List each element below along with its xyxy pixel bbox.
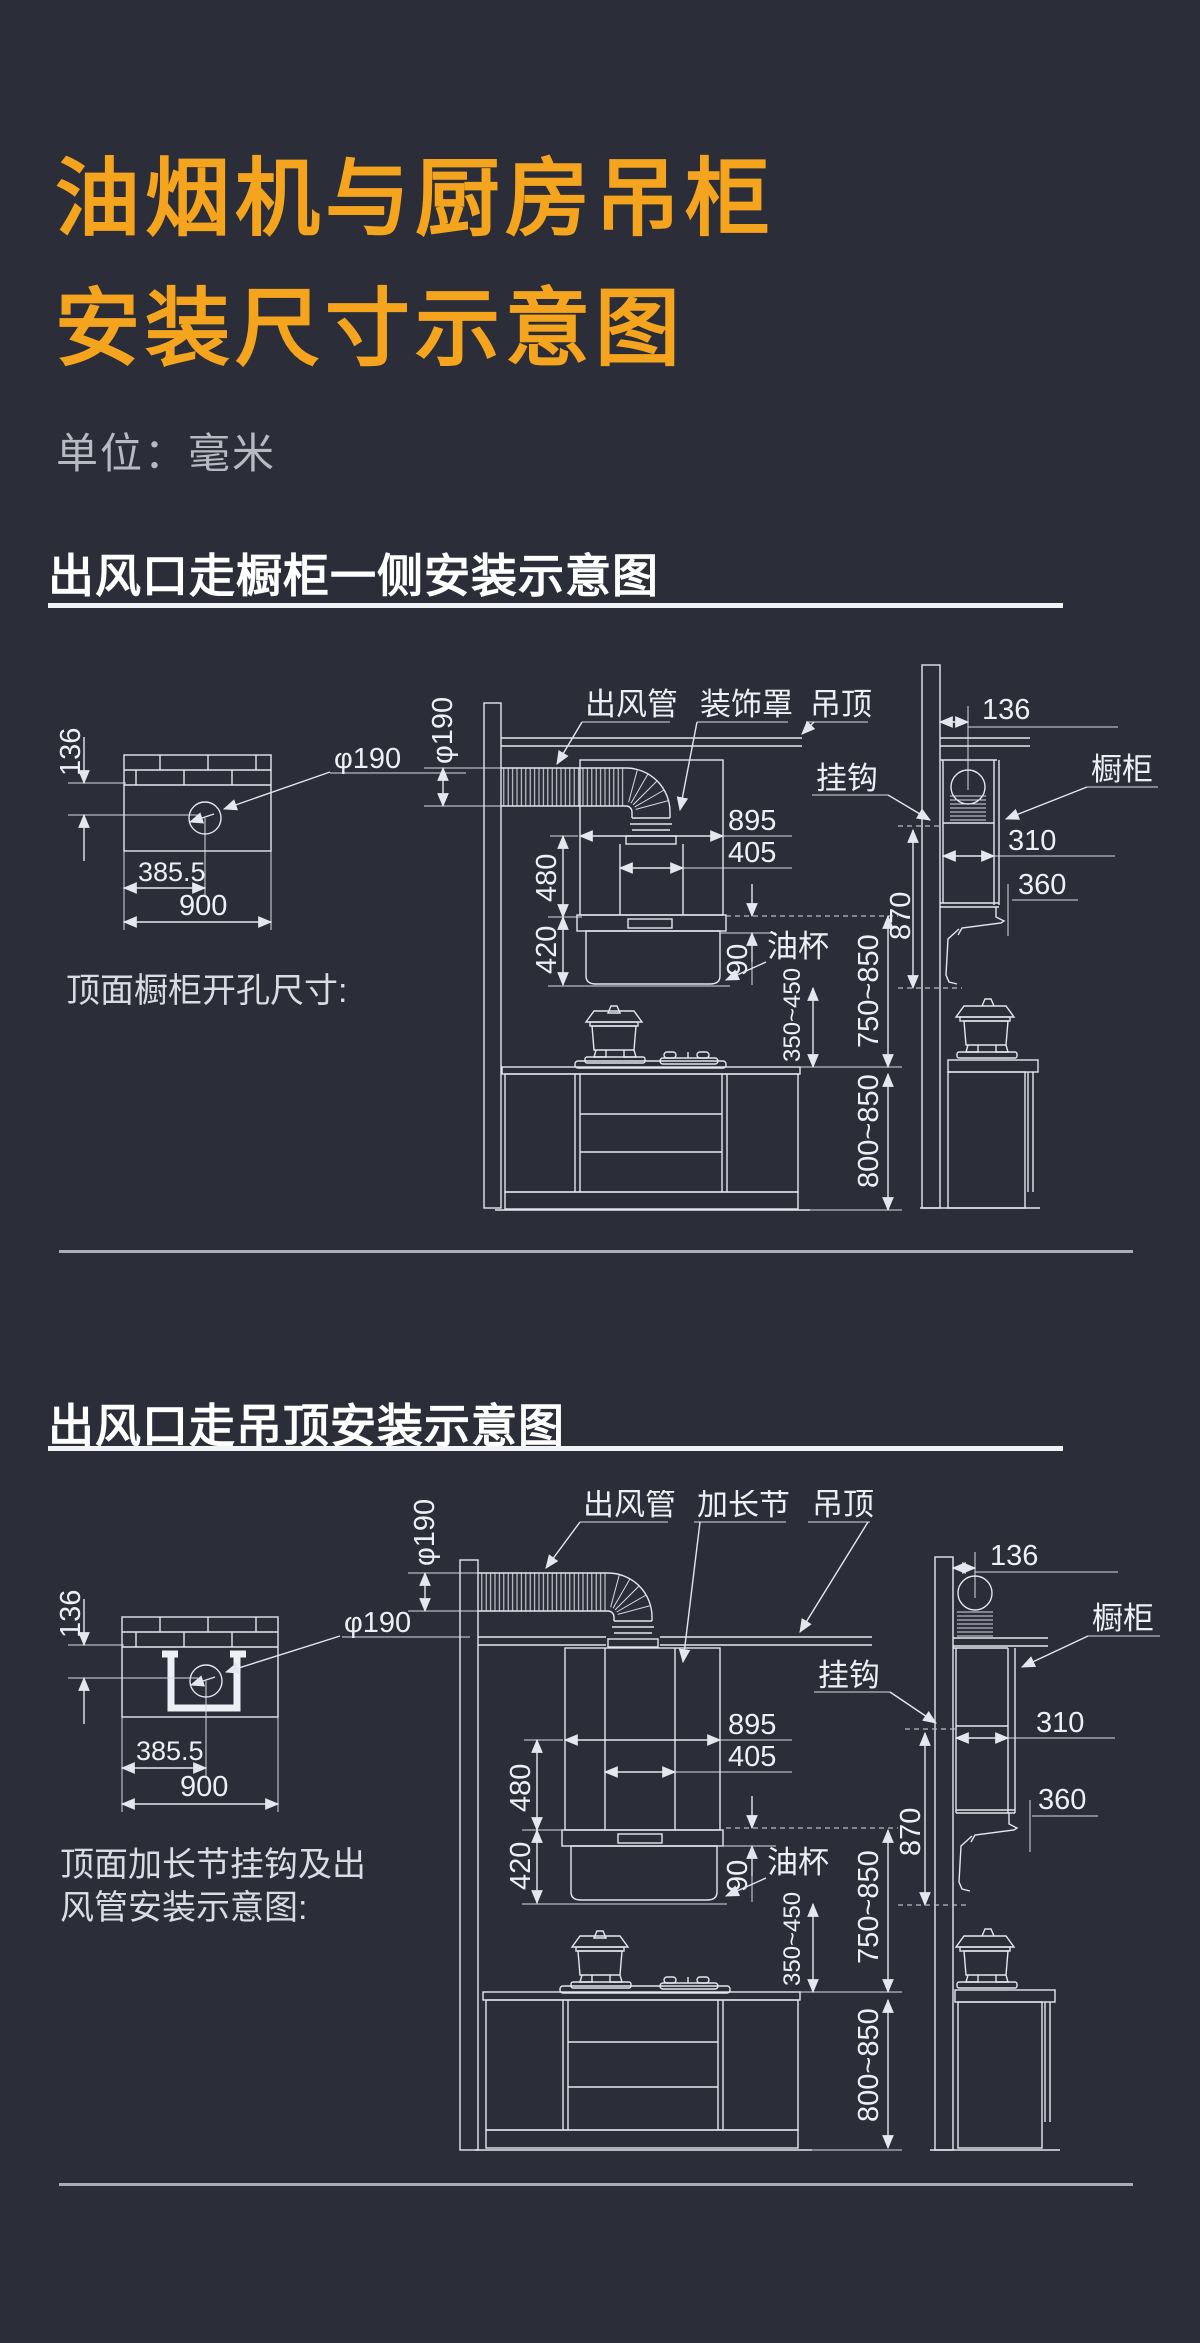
s1-hood-to-stove: 350~450	[779, 968, 806, 1062]
s1-elbow	[626, 768, 676, 844]
s1-side-counter-cabinet	[920, 999, 1040, 1208]
s2-ceiling-label: 吊顶	[812, 1490, 874, 1522]
s1-cutout-caption: 顶面橱柜开孔尺寸:	[66, 972, 347, 1010]
s2-side-wall	[935, 1557, 953, 2150]
s2-cover-height: 480	[505, 1764, 537, 1812]
title-line1: 油烟机与厨房吊柜	[55, 152, 775, 247]
s1-chimney	[620, 844, 683, 915]
s1-ceiling-label: 吊顶	[810, 687, 872, 722]
s2-stove-and-cabinet	[475, 1931, 812, 2150]
section2-drawing: φ190 136 385.5 900 顶面加长节挂钩及出 风管安装示意图:	[0, 1490, 1200, 2170]
s1-cutout-cabinet-width: 900	[179, 890, 227, 922]
s1-side-view: 136 870 310 橱柜 360	[885, 665, 1158, 1208]
s1-hook-height: 870	[885, 892, 917, 940]
s1-hood-to-counter: 750~850	[853, 934, 885, 1048]
s2-outlet-width: 405	[728, 1741, 776, 1773]
s1-duct-label: 出风管	[585, 687, 678, 722]
s2-extension-box	[565, 1648, 720, 1830]
s1-front-view: 出风管 装饰罩 吊顶 φ190 895 405 480 420	[424, 687, 930, 1210]
s1-cutout-hole-center-x: 385.5	[138, 857, 206, 887]
s2-duct-diameter: φ190	[409, 1499, 441, 1566]
s2-side-view: 136 870 310 橱柜 360	[895, 1540, 1160, 2150]
s1-duct-diameter: φ190	[427, 697, 459, 764]
s2-hook-label: 挂钩	[818, 1658, 880, 1693]
s2-hook-height: 870	[895, 1808, 927, 1856]
s1-counter-height: 800~850	[853, 1074, 885, 1188]
s1-cabinet-label: 橱柜	[1091, 752, 1153, 787]
s2-hood	[562, 1830, 723, 1900]
s1-oilcup-label: 油杯	[767, 929, 829, 964]
section1-drawing: φ190 136 385.5 900 顶面橱柜开孔尺寸:	[0, 655, 1200, 1220]
s2-side-wall-offset: 136	[990, 1540, 1038, 1572]
s1-duct	[501, 768, 626, 806]
s1-cover-height: 480	[531, 854, 563, 902]
s2-hood-to-stove: 350~450	[779, 1892, 806, 1986]
s2-hood-height: 420	[505, 1842, 537, 1890]
s2-cutout-caption-line1: 顶面加长节挂钩及出	[60, 1846, 366, 1884]
s2-cutout-edge-offset: 136	[55, 1590, 87, 1638]
s1-cutout-edge-offset: 136	[55, 728, 87, 776]
s2-front-view: 出风管 加长节 吊顶 φ190 895 405 480 420	[408, 1490, 936, 2150]
s1-cutout-top-view: φ190 136 385.5 900 顶面橱柜开孔尺寸:	[55, 728, 466, 1010]
page-title: 油烟机与厨房吊柜 安装尺寸示意图	[55, 135, 775, 395]
s1-cover-label: 装饰罩	[700, 687, 793, 722]
s1-hood-width: 895	[728, 805, 776, 837]
section2-heading-rule	[48, 1446, 1063, 1451]
s2-extension-label: 加长节	[697, 1490, 790, 1522]
s1-hood-height: 420	[531, 926, 563, 974]
s1-outlet-width: 405	[728, 837, 776, 869]
s1-hood-depth: 360	[1018, 869, 1066, 901]
s2-hood-to-counter: 750~850	[853, 1850, 885, 1964]
s2-cutout-hole-center-x: 385.5	[136, 1736, 204, 1766]
s2-cutout-top-view: φ190 136 385.5 900 顶面加长节挂钩及出 风管安装示意图:	[55, 1590, 470, 1927]
s2-counter-height: 800~850	[853, 2008, 885, 2122]
s2-ceiling-line	[478, 1637, 872, 1645]
units-label: 单位：毫米	[56, 420, 276, 481]
infographic-canvas: 油烟机与厨房吊柜 安装尺寸示意图 单位：毫米 出风口走橱柜一侧安装示意图 φ1	[0, 0, 1200, 2343]
s1-cutout-hole-diameter: φ190	[334, 743, 401, 775]
s1-wall	[484, 703, 501, 1208]
s1-oilcup-height: 90	[722, 944, 754, 976]
s2-elbow	[608, 1573, 658, 1647]
section-divider-1	[59, 1250, 1133, 1253]
s2-side-counter-cabinet	[930, 1929, 1060, 2150]
s2-oilcup-height: 90	[722, 1860, 754, 1892]
s2-oilcup-label: 油杯	[767, 1845, 829, 1880]
s2-cutout-cabinet-width: 900	[180, 1771, 228, 1803]
s2-hood-width: 895	[728, 1709, 776, 1741]
title-line2: 安装尺寸示意图	[55, 282, 685, 377]
s2-duct	[478, 1573, 608, 1611]
s1-side-wall	[922, 665, 940, 1208]
s2-wall	[460, 1560, 478, 2150]
s1-stove-and-cabinet	[495, 1006, 810, 1210]
s2-cutout-hole-diameter: φ190	[344, 1607, 411, 1639]
s1-cabinet-depth: 310	[1008, 825, 1056, 857]
section-divider-2	[59, 2183, 1133, 2186]
s2-duct-label: 出风管	[583, 1490, 676, 1522]
s1-hook-label: 挂钩	[816, 761, 878, 796]
s2-cabinet-depth: 310	[1036, 1707, 1084, 1739]
s1-ceiling-line	[501, 738, 802, 746]
s1-side-wall-offset: 136	[982, 694, 1030, 726]
section1-heading: 出风口走橱柜一侧安装示意图	[48, 540, 659, 606]
s2-cutout-caption-line2: 风管安装示意图:	[60, 1889, 307, 1927]
s2-hood-depth: 360	[1038, 1784, 1086, 1816]
s2-cabinet-label: 橱柜	[1092, 1601, 1154, 1636]
section1-heading-rule	[48, 603, 1063, 608]
s1-hood	[577, 915, 726, 984]
